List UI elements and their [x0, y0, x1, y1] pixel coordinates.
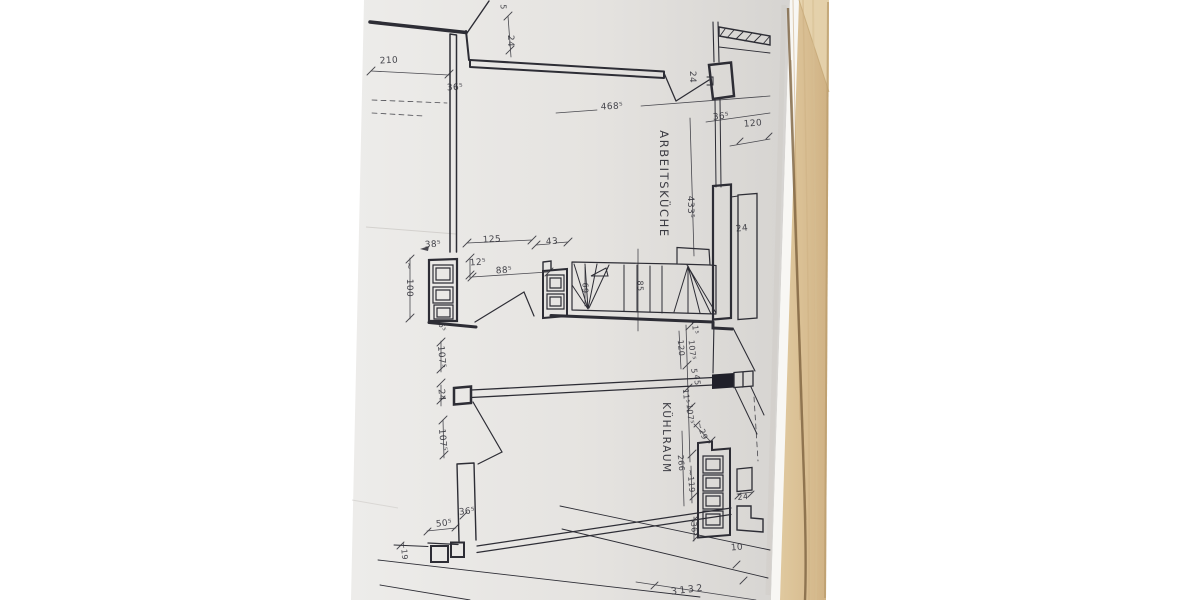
dim-120-mid-label: 120 [676, 339, 686, 356]
dim-50-label: 50⁵ [435, 518, 452, 529]
dim-210-label: 210 [380, 56, 399, 67]
dim-36-bottom-label: 36⁵ [458, 506, 475, 517]
room-label-arbeitskueche: ARBEITSKÜCHE [657, 130, 671, 238]
dim-24-pillar-label: 24 [435, 388, 446, 401]
dim-36-coldroom-label: 36⁵ [689, 521, 699, 536]
dim-12-5-label: 12⁵ [470, 257, 487, 268]
dim-36-top-left-label: 36⁵ [447, 83, 464, 94]
dim-125-label: 125 [483, 235, 502, 246]
dim-19-label: ~19 [399, 542, 410, 561]
dim-433-label: 433⁵ [685, 196, 695, 218]
dim-107-mid-label: 107⁵ [687, 340, 698, 361]
dim-100-label: 100 [404, 279, 414, 297]
dim-88-label: 88⁵ [496, 265, 513, 276]
dim-36-top-right-label: 36⁵ [712, 111, 729, 122]
dim-119-label: ~119 [685, 469, 696, 493]
dim-107-left-a-label: 107⁵ [435, 345, 447, 368]
dim-100-tilde: ~ [403, 262, 413, 270]
stair-dim-85-label: 85 [636, 281, 645, 292]
dim-24-top-label: 24 [505, 35, 515, 47]
dim-38-label: 38⁵ [425, 239, 442, 250]
dim-43-label: 43 [546, 237, 559, 248]
dim-468-label: 468⁵ [601, 101, 624, 112]
stair-dim-69-label: 69 [581, 283, 590, 294]
floor-plan-drawing [0, 0, 1200, 600]
dim-5-top-label: 5 [499, 4, 508, 10]
photo-of-floor-plan: 210 36⁵ 24 5 468⁵ 24 36⁵ 120 ARBEITSKÜCH… [0, 0, 1200, 600]
room-label-kuehlraum: KÜHLRAUM [660, 402, 672, 474]
dim-107-coldroom-label: 107⁵ [685, 404, 696, 425]
dim-5-door-label: 5 [689, 368, 698, 374]
dim-120-edge-label: 120 [743, 118, 762, 130]
dim-107-left-b-label: 107⁵ [436, 428, 448, 451]
dim-24-coldroom-label: 24 [737, 492, 749, 502]
dim-24-right-label: 24 [735, 223, 748, 234]
dim-24-door-label: 24 [687, 71, 697, 83]
dim-11-door-label: 11⁵ [681, 388, 691, 403]
dim-10-label: 10 [730, 542, 743, 553]
dark-door-marker [712, 373, 734, 389]
dim-45-door-label: 45 [692, 374, 702, 386]
dim-11-stairs-label: 11⁵ [690, 319, 700, 334]
